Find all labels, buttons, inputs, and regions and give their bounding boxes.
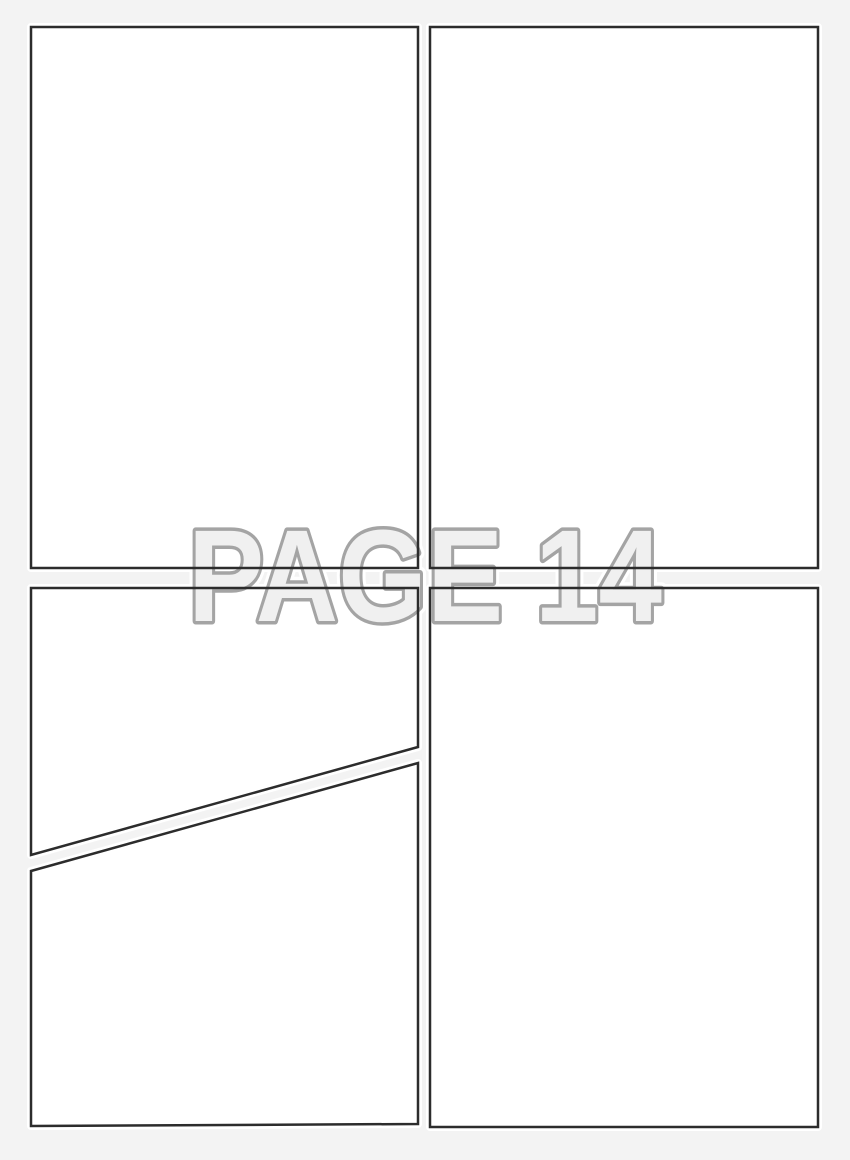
panel-top-right-fill	[430, 27, 818, 568]
comic-page-canvas: PAGE 14 PAGE 14 PAGE 14	[0, 0, 850, 1160]
panel-top-left-fill	[31, 27, 418, 568]
page-watermark: PAGE 14 PAGE 14 PAGE 14	[188, 502, 662, 649]
comic-page-template: PAGE 14 PAGE 14 PAGE 14	[0, 0, 850, 1160]
page-watermark-label: PAGE 14	[188, 502, 662, 649]
panel-bottom-right-fill	[430, 588, 818, 1127]
